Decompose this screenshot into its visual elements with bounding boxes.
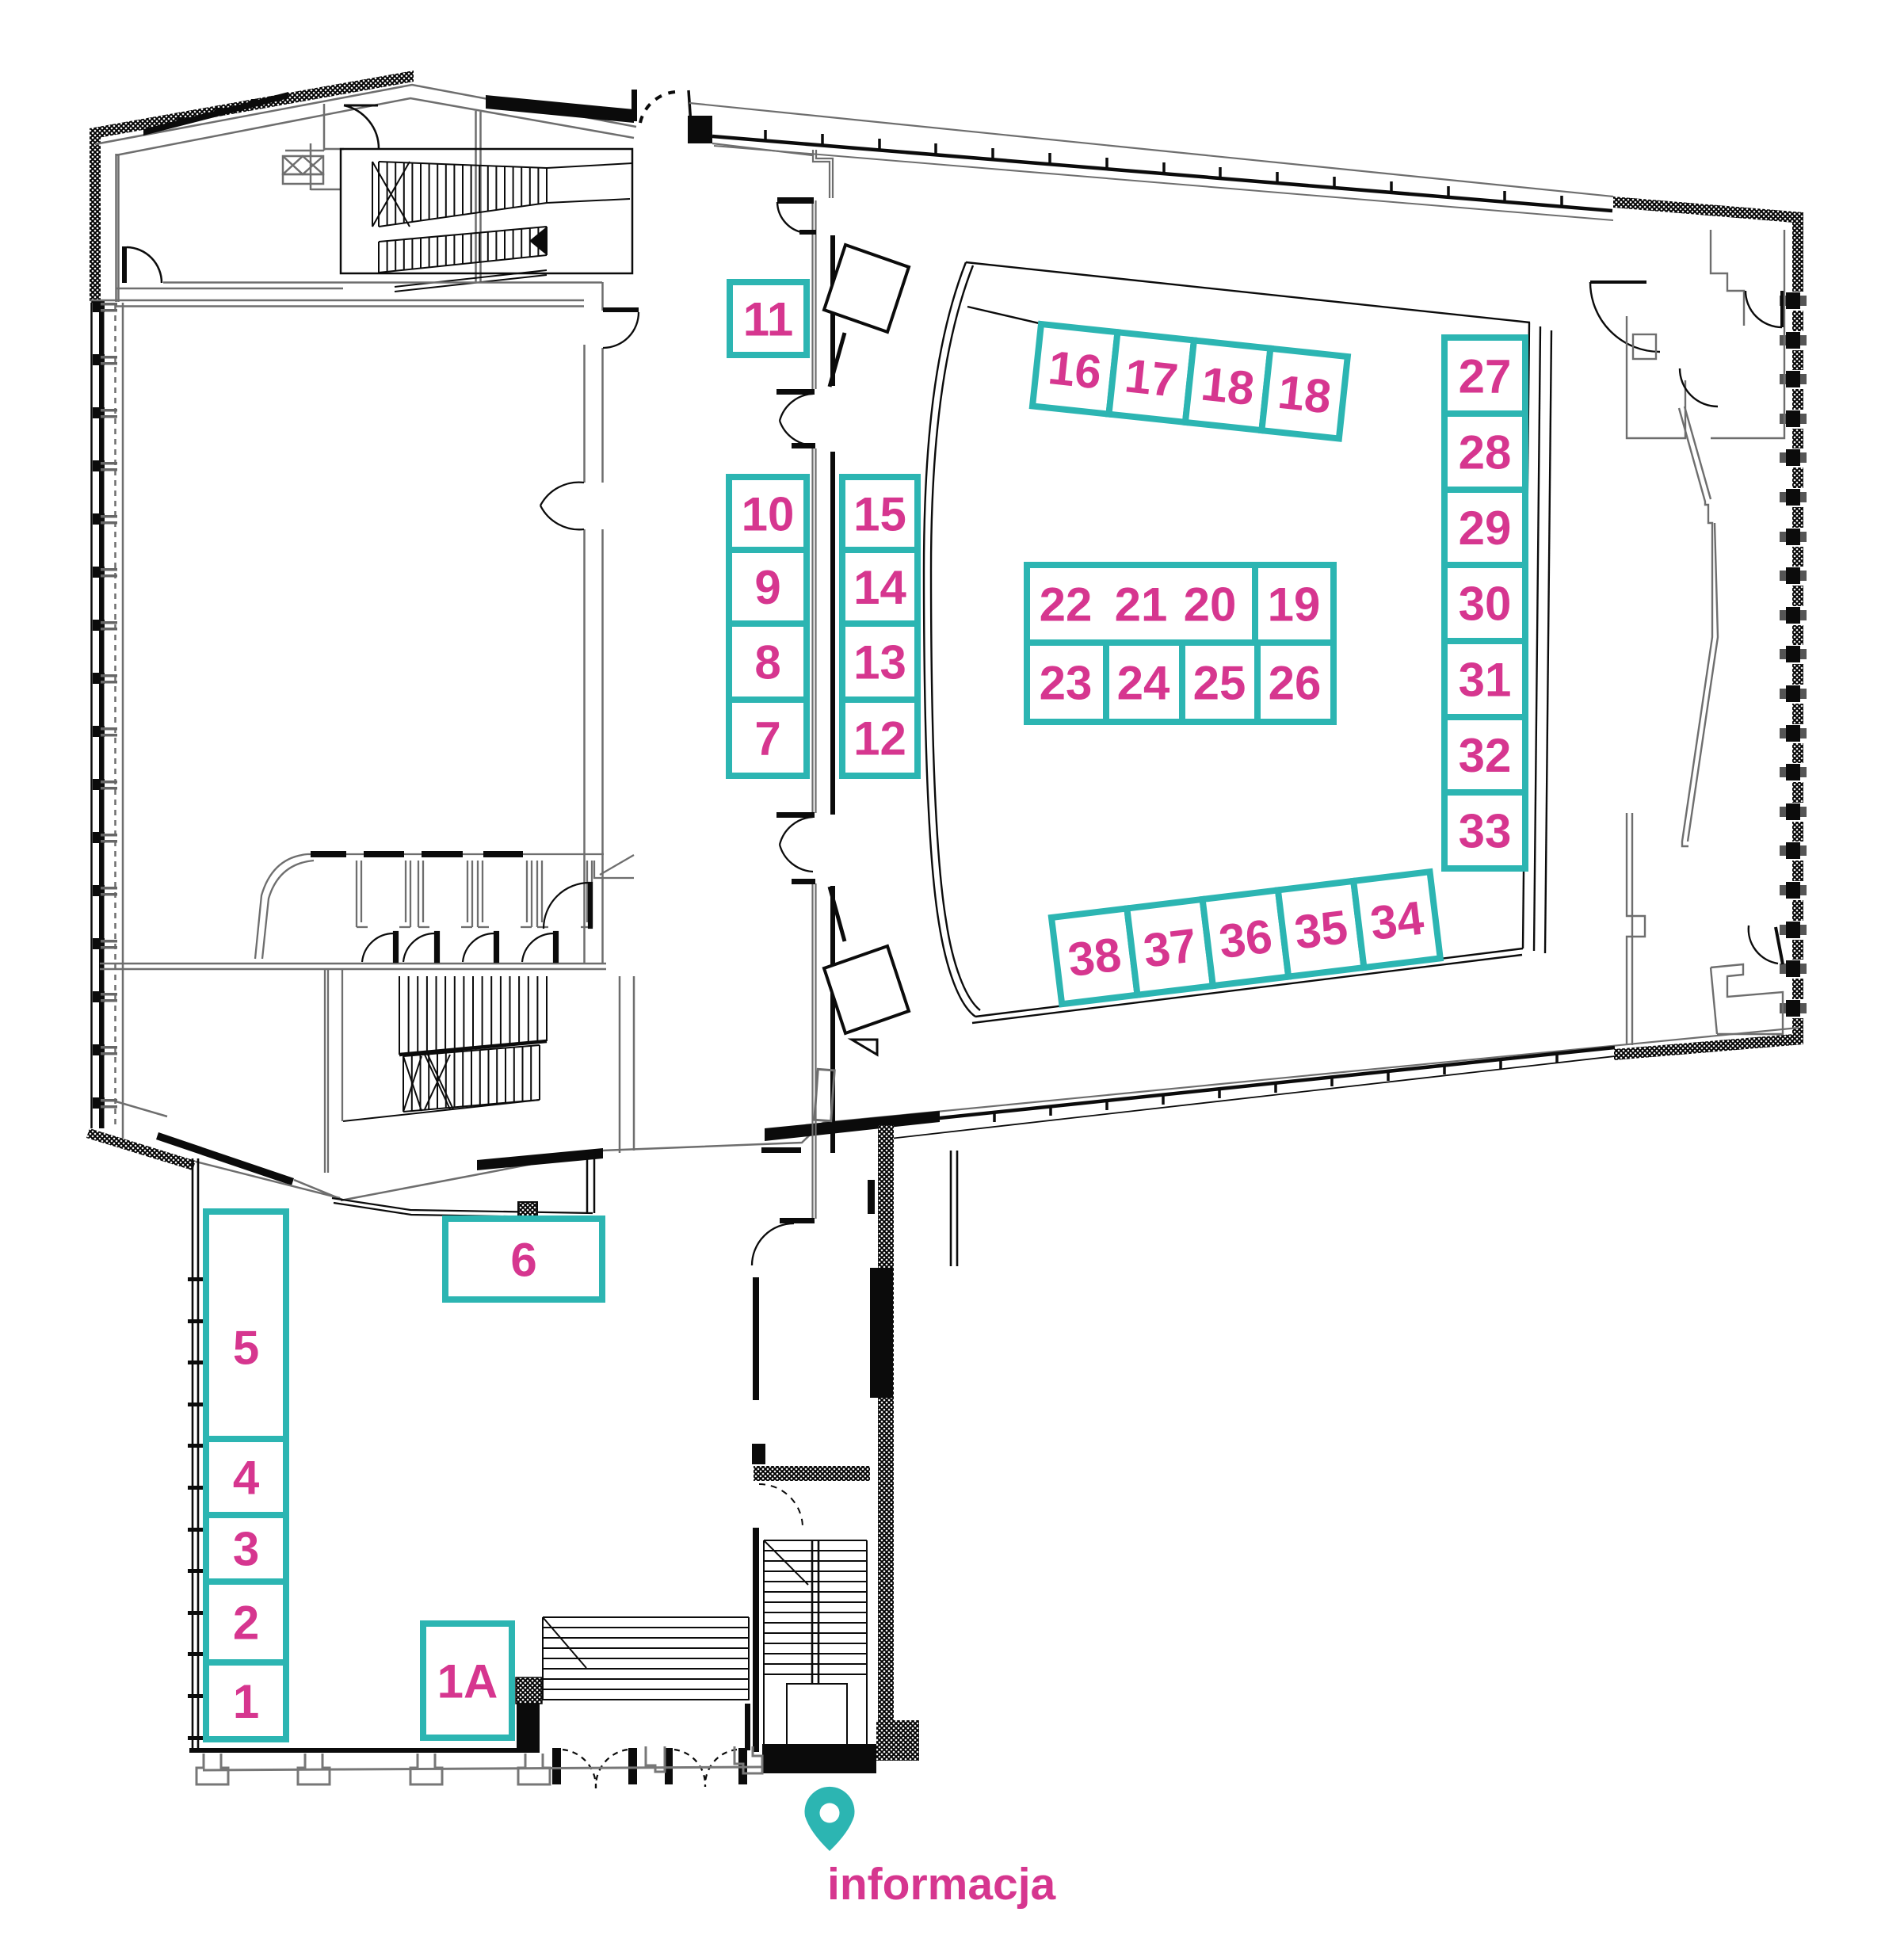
svg-text:informacja: informacja xyxy=(827,1859,1057,1910)
svg-text:28: 28 xyxy=(1459,426,1512,479)
svg-text:21: 21 xyxy=(1115,578,1168,632)
svg-text:1: 1 xyxy=(233,1675,259,1728)
svg-text:20: 20 xyxy=(1184,578,1237,632)
svg-text:27: 27 xyxy=(1459,350,1512,403)
svg-text:23: 23 xyxy=(1040,657,1093,710)
svg-text:18: 18 xyxy=(1276,365,1334,424)
svg-text:32: 32 xyxy=(1459,729,1512,782)
svg-text:2: 2 xyxy=(233,1597,259,1650)
svg-text:26: 26 xyxy=(1269,657,1322,710)
svg-text:11: 11 xyxy=(743,293,793,346)
svg-text:15: 15 xyxy=(853,488,906,541)
svg-text:17: 17 xyxy=(1122,349,1180,407)
svg-text:36: 36 xyxy=(1216,910,1275,969)
svg-text:9: 9 xyxy=(754,561,780,614)
svg-text:12: 12 xyxy=(853,712,906,765)
svg-text:8: 8 xyxy=(754,636,780,689)
svg-text:24: 24 xyxy=(1117,657,1170,710)
svg-text:33: 33 xyxy=(1459,805,1512,858)
svg-text:30: 30 xyxy=(1459,578,1512,631)
svg-text:29: 29 xyxy=(1459,502,1512,555)
svg-text:7: 7 xyxy=(754,712,780,765)
svg-text:18: 18 xyxy=(1199,357,1257,416)
svg-text:34: 34 xyxy=(1368,891,1427,950)
svg-text:1A: 1A xyxy=(437,1655,498,1708)
svg-text:10: 10 xyxy=(742,488,795,541)
svg-text:19: 19 xyxy=(1268,578,1321,632)
svg-text:22: 22 xyxy=(1040,578,1093,632)
svg-text:31: 31 xyxy=(1459,654,1512,707)
svg-text:5: 5 xyxy=(233,1322,259,1375)
svg-text:25: 25 xyxy=(1193,657,1246,710)
svg-text:37: 37 xyxy=(1141,918,1200,978)
svg-text:16: 16 xyxy=(1046,341,1104,399)
svg-text:35: 35 xyxy=(1292,900,1350,960)
svg-text:6: 6 xyxy=(510,1234,536,1287)
svg-text:38: 38 xyxy=(1065,928,1124,987)
svg-text:3: 3 xyxy=(233,1523,259,1576)
svg-text:13: 13 xyxy=(853,636,906,689)
svg-text:4: 4 xyxy=(233,1452,260,1505)
svg-text:14: 14 xyxy=(853,561,906,614)
